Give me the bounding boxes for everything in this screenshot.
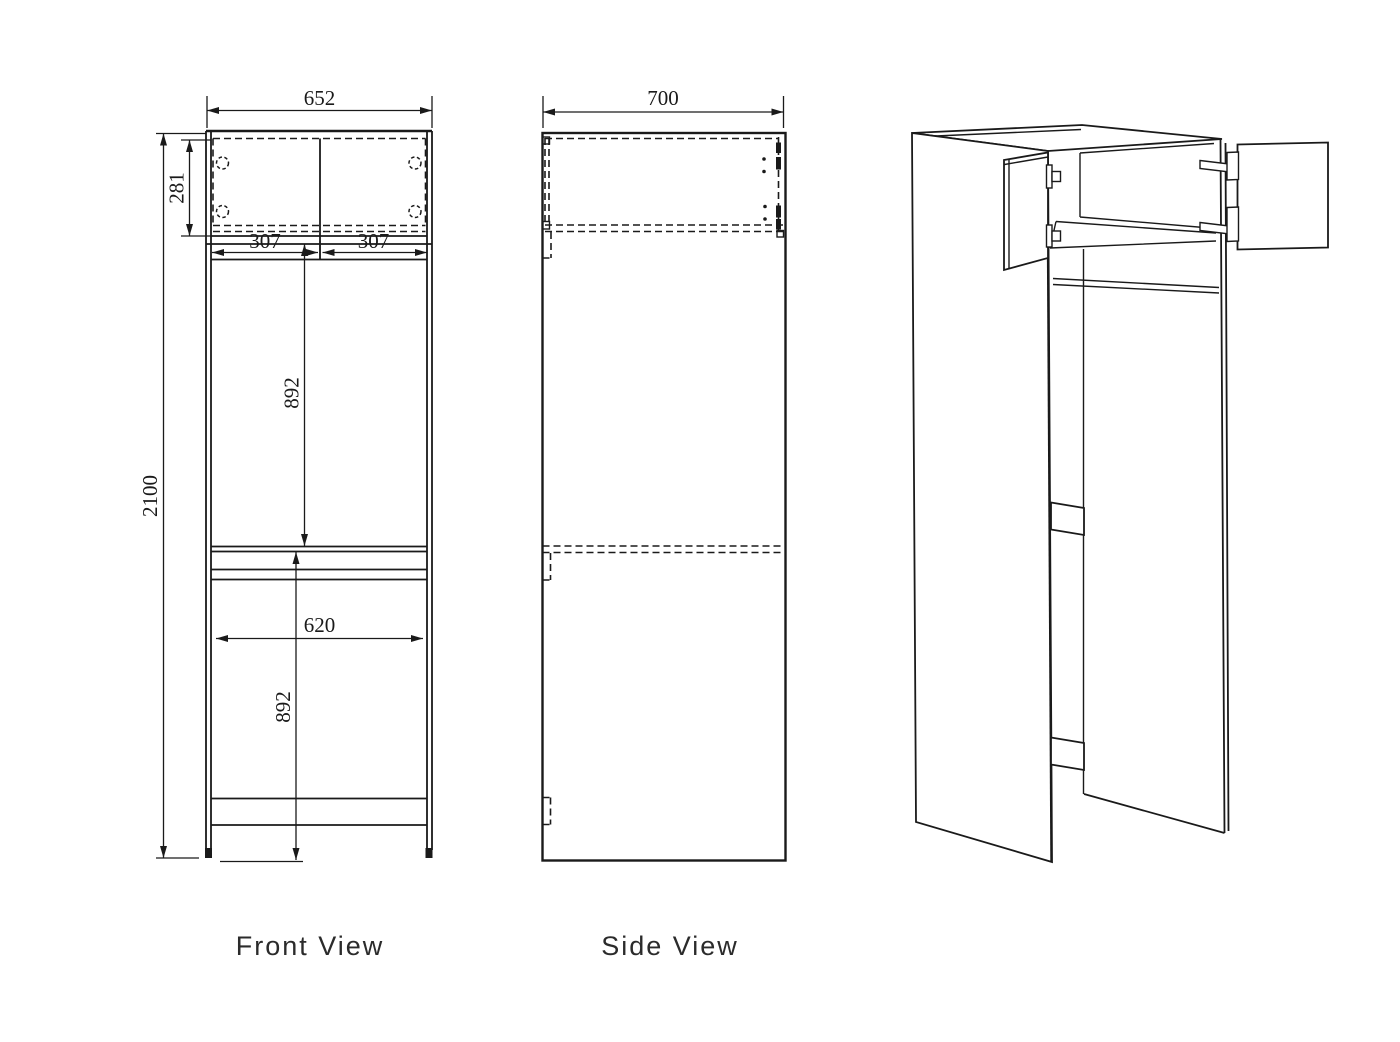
iso-batten-lower: [1051, 738, 1084, 771]
iso-left-hinge-top-plate: [1047, 165, 1053, 188]
side-hinge-block-2: [776, 157, 781, 170]
dim-lower-width: 620: [304, 613, 336, 637]
side-hinge-dot-3: [763, 205, 767, 209]
side-hinge-block-1: [776, 143, 781, 154]
iso-left-hinge-top-arm: [1052, 172, 1061, 182]
iso-right-hinge-bottom-plate: [1227, 207, 1239, 242]
iso-right-panel-front-edge: [1221, 140, 1229, 833]
dim-upper-box-height: 281: [165, 172, 189, 204]
side-upper-box-dashed: [545, 137, 785, 232]
iso-batten-upper: [1051, 503, 1084, 536]
dim-door-left: 307: [249, 229, 281, 253]
side-view-label: Side View: [601, 931, 739, 961]
hinge-bore-top-right: [409, 157, 421, 169]
iso-right-hinge-top-plate: [1227, 152, 1239, 180]
iso-box-bottom-rail: [1053, 279, 1219, 294]
side-hinge-dot-1: [762, 157, 766, 161]
side-hinge-dot-2: [762, 170, 766, 174]
hinge-bore-top-left: [217, 157, 229, 169]
side-hinge-block-4: [776, 219, 781, 230]
iso-box-shelf: [1050, 222, 1216, 249]
drawing-canvas: 652 281 2100 307 307 892 620 892: [0, 0, 1400, 1042]
front-box-bottom: [206, 236, 432, 260]
side-hinge-dot-4: [763, 217, 767, 221]
front-bottom-rails: [211, 799, 427, 826]
side-outline: [543, 133, 786, 861]
dim-lower-opening: 892: [271, 691, 295, 723]
iso-box-interior: [1080, 144, 1216, 229]
iso-left-hinge-bottom-plate: [1047, 225, 1053, 247]
side-bracket-lower: [543, 798, 551, 825]
side-view-drawing: 700: [543, 86, 786, 861]
dim-side-depth: 700: [647, 86, 679, 110]
technical-drawing-page: 652 281 2100 307 307 892 620 892: [0, 0, 1400, 1042]
hinge-bore-bottom-left: [217, 206, 229, 218]
side-bracket-middle: [543, 553, 551, 580]
front-side-panels: [206, 131, 432, 850]
iso-right-door: [1238, 143, 1329, 250]
front-right-foot: [426, 848, 433, 858]
iso-right-panel-bottom-edge: [1084, 794, 1225, 833]
side-middle-shelf-dashed: [543, 546, 786, 553]
iso-left-door: [1004, 153, 1048, 271]
front-view-label: Front View: [236, 931, 385, 961]
side-hinge-block-3: [776, 206, 781, 218]
dim-upper-opening: 892: [280, 377, 304, 409]
front-left-foot: [205, 848, 212, 858]
front-middle-shelf: [211, 547, 427, 580]
front-view-drawing: 652 281 2100 307 307 892 620 892: [138, 86, 433, 862]
dim-front-width: 652: [304, 86, 336, 110]
iso-left-hinge-bottom-arm: [1052, 231, 1061, 241]
isometric-view-drawing: [912, 125, 1328, 862]
hinge-bore-bottom-right: [409, 206, 421, 218]
dim-total-height: 2100: [138, 475, 162, 517]
dim-door-right: 307: [358, 229, 390, 253]
side-back-panel-lower-dashed: [543, 232, 552, 258]
